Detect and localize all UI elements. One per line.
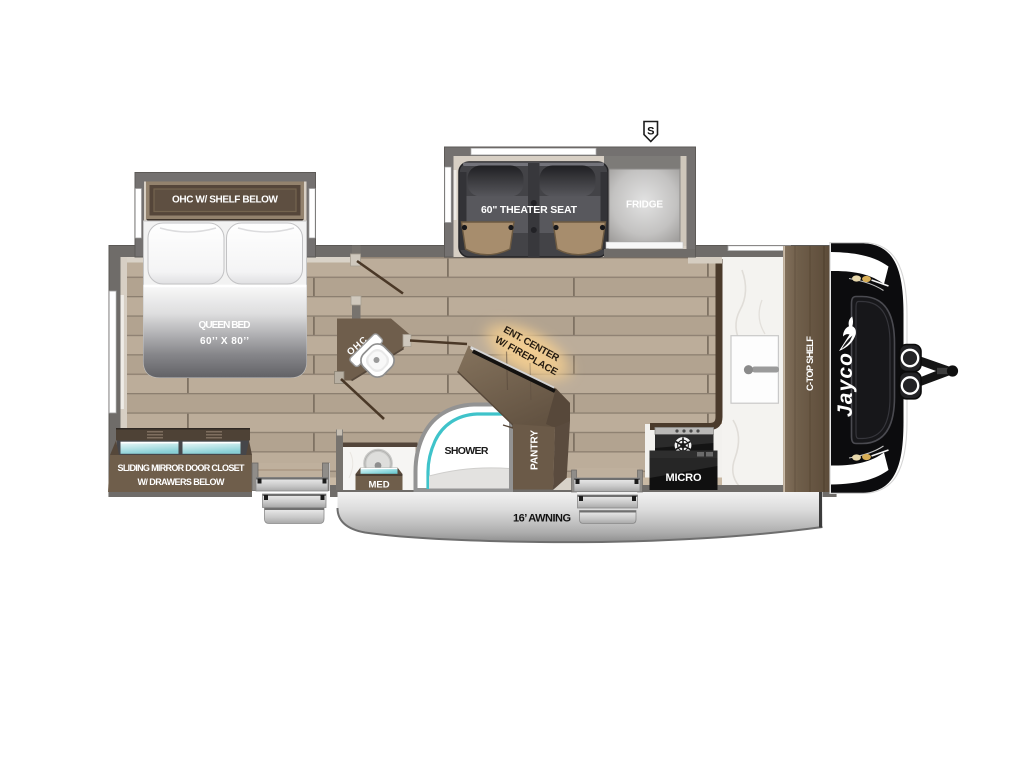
svg-text:Jayco: Jayco (834, 353, 857, 417)
svg-text:QUEEN BED: QUEEN BED (199, 320, 251, 331)
svg-text:S: S (647, 126, 654, 138)
svg-text:OHC W/ SHELF BELOW: OHC W/ SHELF BELOW (172, 195, 279, 206)
svg-text:SHOWER: SHOWER (445, 445, 489, 457)
svg-text:W/ DRAWERS BELOW: W/ DRAWERS BELOW (138, 477, 226, 487)
svg-text:MED: MED (368, 479, 389, 490)
svg-text:FRIDGE: FRIDGE (626, 199, 663, 210)
svg-text:PANTRY: PANTRY (530, 430, 541, 470)
svg-text:60" THEATER SEAT: 60" THEATER SEAT (481, 204, 578, 216)
svg-text:16’ AWNING: 16’ AWNING (513, 513, 571, 525)
svg-text:C-TOP SHELF: C-TOP SHELF (805, 336, 815, 391)
svg-text:MICRO: MICRO (666, 472, 702, 484)
svg-text:60’’ X 80’’: 60’’ X 80’’ (200, 336, 249, 347)
svg-text:SLIDING MIRROR DOOR CLOSET: SLIDING MIRROR DOOR CLOSET (118, 463, 246, 473)
